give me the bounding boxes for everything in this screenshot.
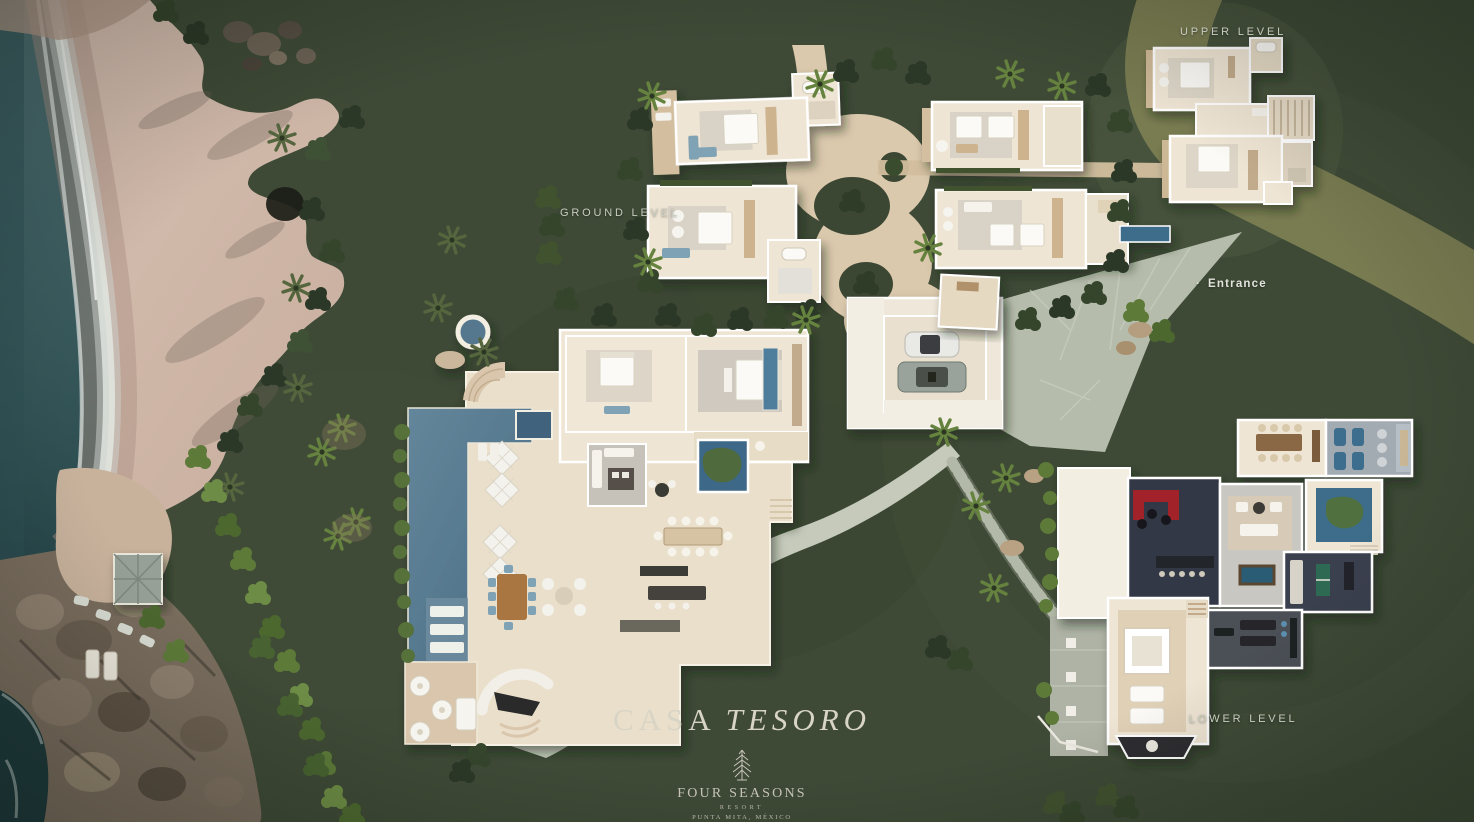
lower-level-label: LOWER LEVEL (1189, 713, 1297, 725)
brand-name: FOUR SEASONS (610, 786, 874, 802)
four-seasons-tree-icon (729, 748, 755, 782)
entrance-bullet: · (1196, 278, 1201, 290)
site-plan: UPPER LEVEL GROUND LEVEL ·Entrance LOWER… (0, 0, 1474, 822)
title-word-tesoro: TESORO (726, 702, 871, 737)
page-title: CASATESORO (560, 702, 924, 738)
ground-level-label: GROUND LEVEL (560, 207, 680, 219)
four-seasons-logo: FOUR SEASONS RESORT PUNTA MITA, MÉXICO (610, 748, 874, 821)
site-plan-rendering (0, 0, 1474, 822)
upper-level-label: UPPER LEVEL (1180, 26, 1286, 38)
title-word-casa: CASA (613, 702, 716, 737)
vignette-overlay (0, 0, 1474, 822)
entrance-label-text: Entrance (1208, 278, 1267, 290)
brand-subtitle: RESORT (610, 805, 874, 811)
entrance-label: ·Entrance (1196, 278, 1267, 290)
brand-location: PUNTA MITA, MÉXICO (610, 814, 874, 821)
